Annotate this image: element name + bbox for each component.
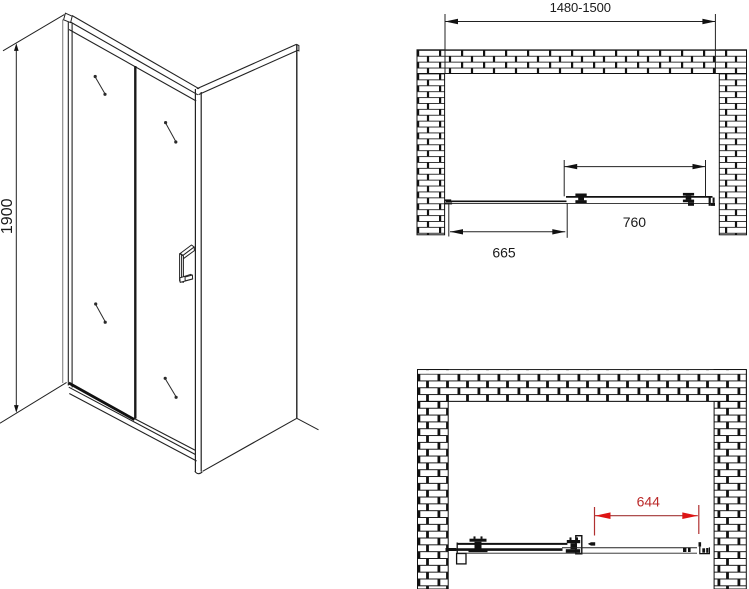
svg-text:1900: 1900 <box>0 198 16 234</box>
svg-text:760: 760 <box>623 214 647 230</box>
svg-text:1480-1500: 1480-1500 <box>550 0 611 15</box>
svg-text:665: 665 <box>492 245 516 261</box>
svg-text:644: 644 <box>637 493 661 509</box>
